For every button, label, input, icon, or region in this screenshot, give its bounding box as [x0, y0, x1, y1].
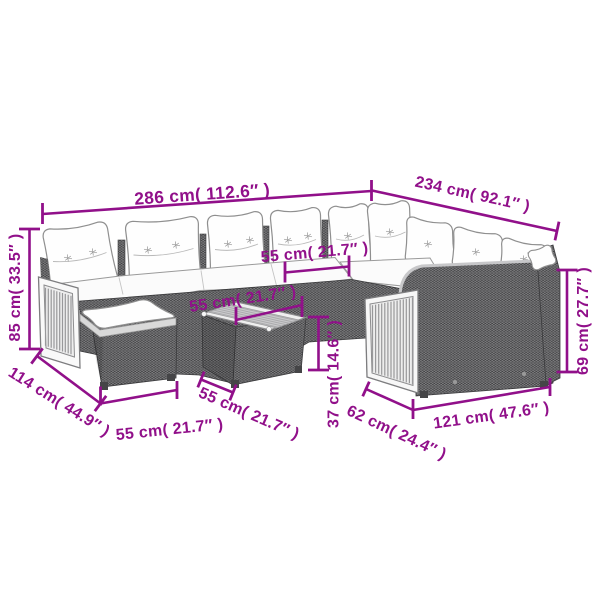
- svg-text:69 cm( 27.7″ ): 69 cm( 27.7″ ): [575, 267, 592, 375]
- svg-text:85 cm( 33.5″ ): 85 cm( 33.5″ ): [7, 234, 24, 342]
- svg-text:37 cm( 14.6″ ): 37 cm( 14.6″ ): [326, 320, 343, 428]
